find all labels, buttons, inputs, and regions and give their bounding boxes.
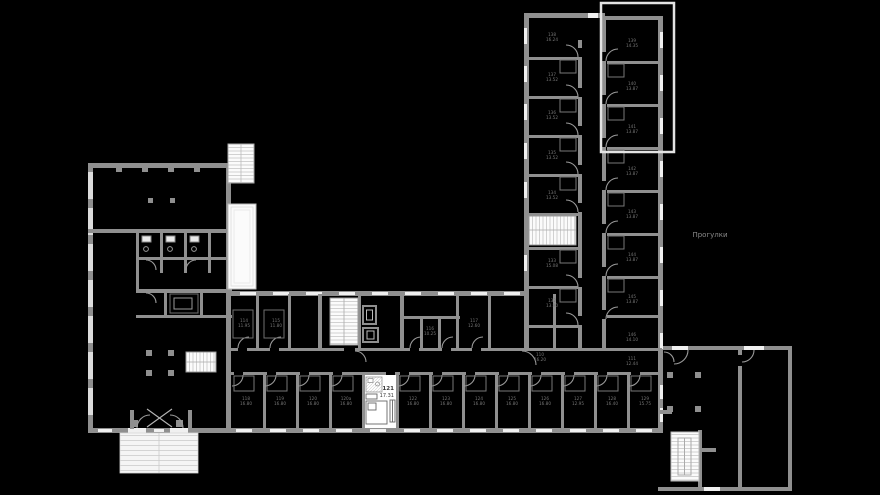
room-label-area: 16.24 (546, 37, 558, 42)
pool-stair (671, 432, 699, 481)
room-label-area: 16.20 (534, 357, 546, 362)
floorplan-canvas: 121 17.31 Прогулки 13816.2413713.5213613… (0, 0, 880, 495)
room-label-area: 10.25 (424, 331, 436, 336)
room-label-area: 16.80 (473, 401, 485, 406)
room-label-area: 16.80 (407, 401, 419, 406)
room-label-area: 13.87 (626, 257, 638, 262)
room-label-area: 14.10 (626, 337, 638, 342)
room-label-area: 13.52 (546, 155, 558, 160)
room-label-area: 16.80 (307, 401, 319, 406)
room-label-area: 16.80 (539, 401, 551, 406)
room-label-area: 13.52 (546, 195, 558, 200)
room-label-area: 13.87 (626, 129, 638, 134)
room-label-area: 14.35 (626, 43, 638, 48)
room-label-area: 15.08 (546, 263, 558, 268)
selected-room-number: 121 (382, 386, 394, 392)
room-label-area: 13.90 (546, 303, 558, 308)
fire-stair-top-left (228, 144, 254, 183)
room-label-area: 11.80 (270, 323, 282, 328)
room-label-area: 13.87 (626, 171, 638, 176)
room-label-area: 13.52 (546, 77, 558, 82)
hall-stair (186, 352, 216, 372)
room-label-area: 12.44 (626, 361, 638, 366)
core-stair (330, 298, 358, 345)
room-label-area: 16.80 (240, 401, 252, 406)
selected-room[interactable]: 121 17.31 (365, 375, 396, 428)
floorplan-drawing: 121 17.31 Прогулки 13816.2413713.5213613… (0, 0, 880, 495)
room-label-area: 12.60 (468, 323, 480, 328)
room-label-area: 15.75 (639, 401, 651, 406)
room-label-area: 13.87 (626, 86, 638, 91)
wing-stair (529, 216, 576, 245)
sink-icon (368, 379, 373, 383)
entrance-steps (120, 433, 198, 473)
room-label-area: 16.80 (440, 401, 452, 406)
room-label-area: 16.80 (340, 401, 352, 406)
room-label-area: 16.40 (606, 401, 618, 406)
room-label-area: 13.52 (546, 115, 558, 120)
room-label-area: 16.80 (274, 401, 286, 406)
area-label: Прогулки (692, 231, 727, 239)
room-label-area: 12.95 (572, 401, 584, 406)
room-label-area: 13.87 (626, 214, 638, 219)
room-label-area: 16.80 (506, 401, 518, 406)
room-label-area: 13.87 (626, 299, 638, 304)
selected-room-area: 17.31 (380, 393, 394, 399)
exterior-ramp (228, 204, 256, 289)
room-label-area: 11.95 (238, 323, 250, 328)
